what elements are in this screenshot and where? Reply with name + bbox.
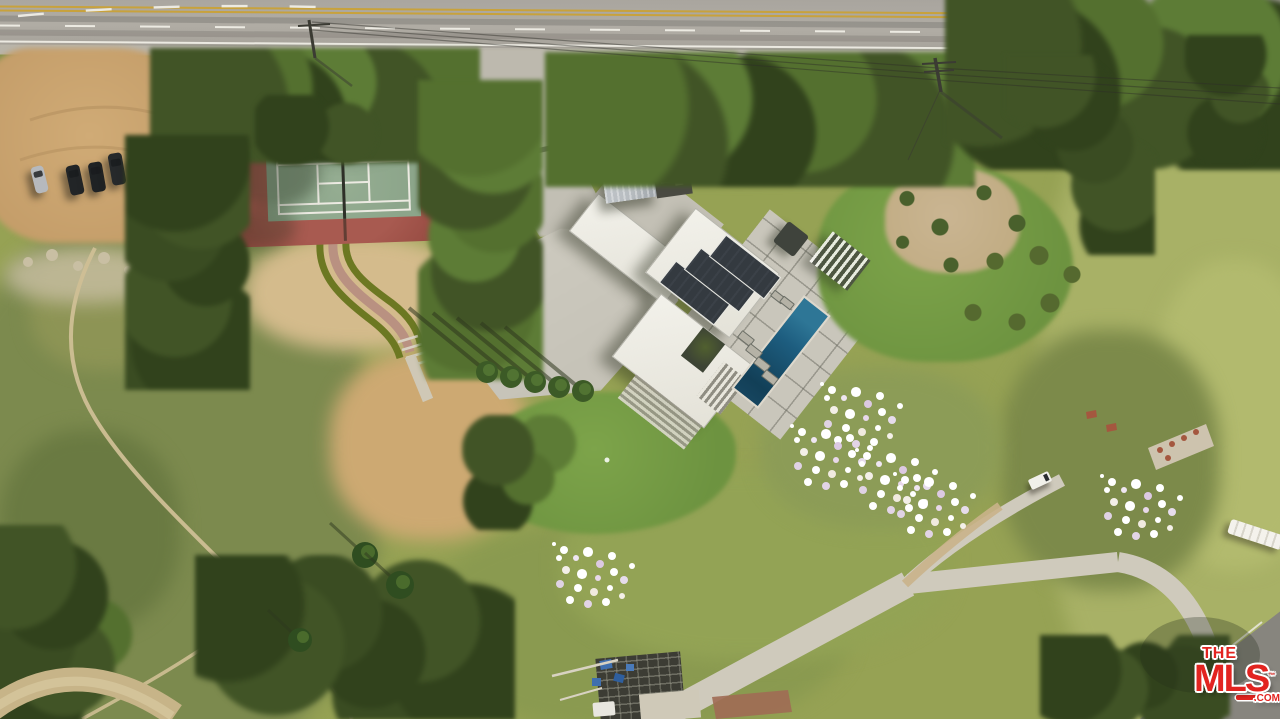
power-lines <box>312 22 1280 104</box>
overlay-layer <box>0 0 1280 719</box>
aerial-photo: THE MLS™ .COM <box>0 0 1280 719</box>
mls-logo: THE MLS™ .COM <box>1194 646 1280 704</box>
lawn-sprinkler <box>605 458 610 463</box>
scattered-palms <box>268 523 414 652</box>
palm-row <box>409 308 594 402</box>
construction-lumber <box>552 660 618 700</box>
utility-pole <box>298 20 352 86</box>
mls-logo-trademark: ™ <box>1268 672 1273 679</box>
